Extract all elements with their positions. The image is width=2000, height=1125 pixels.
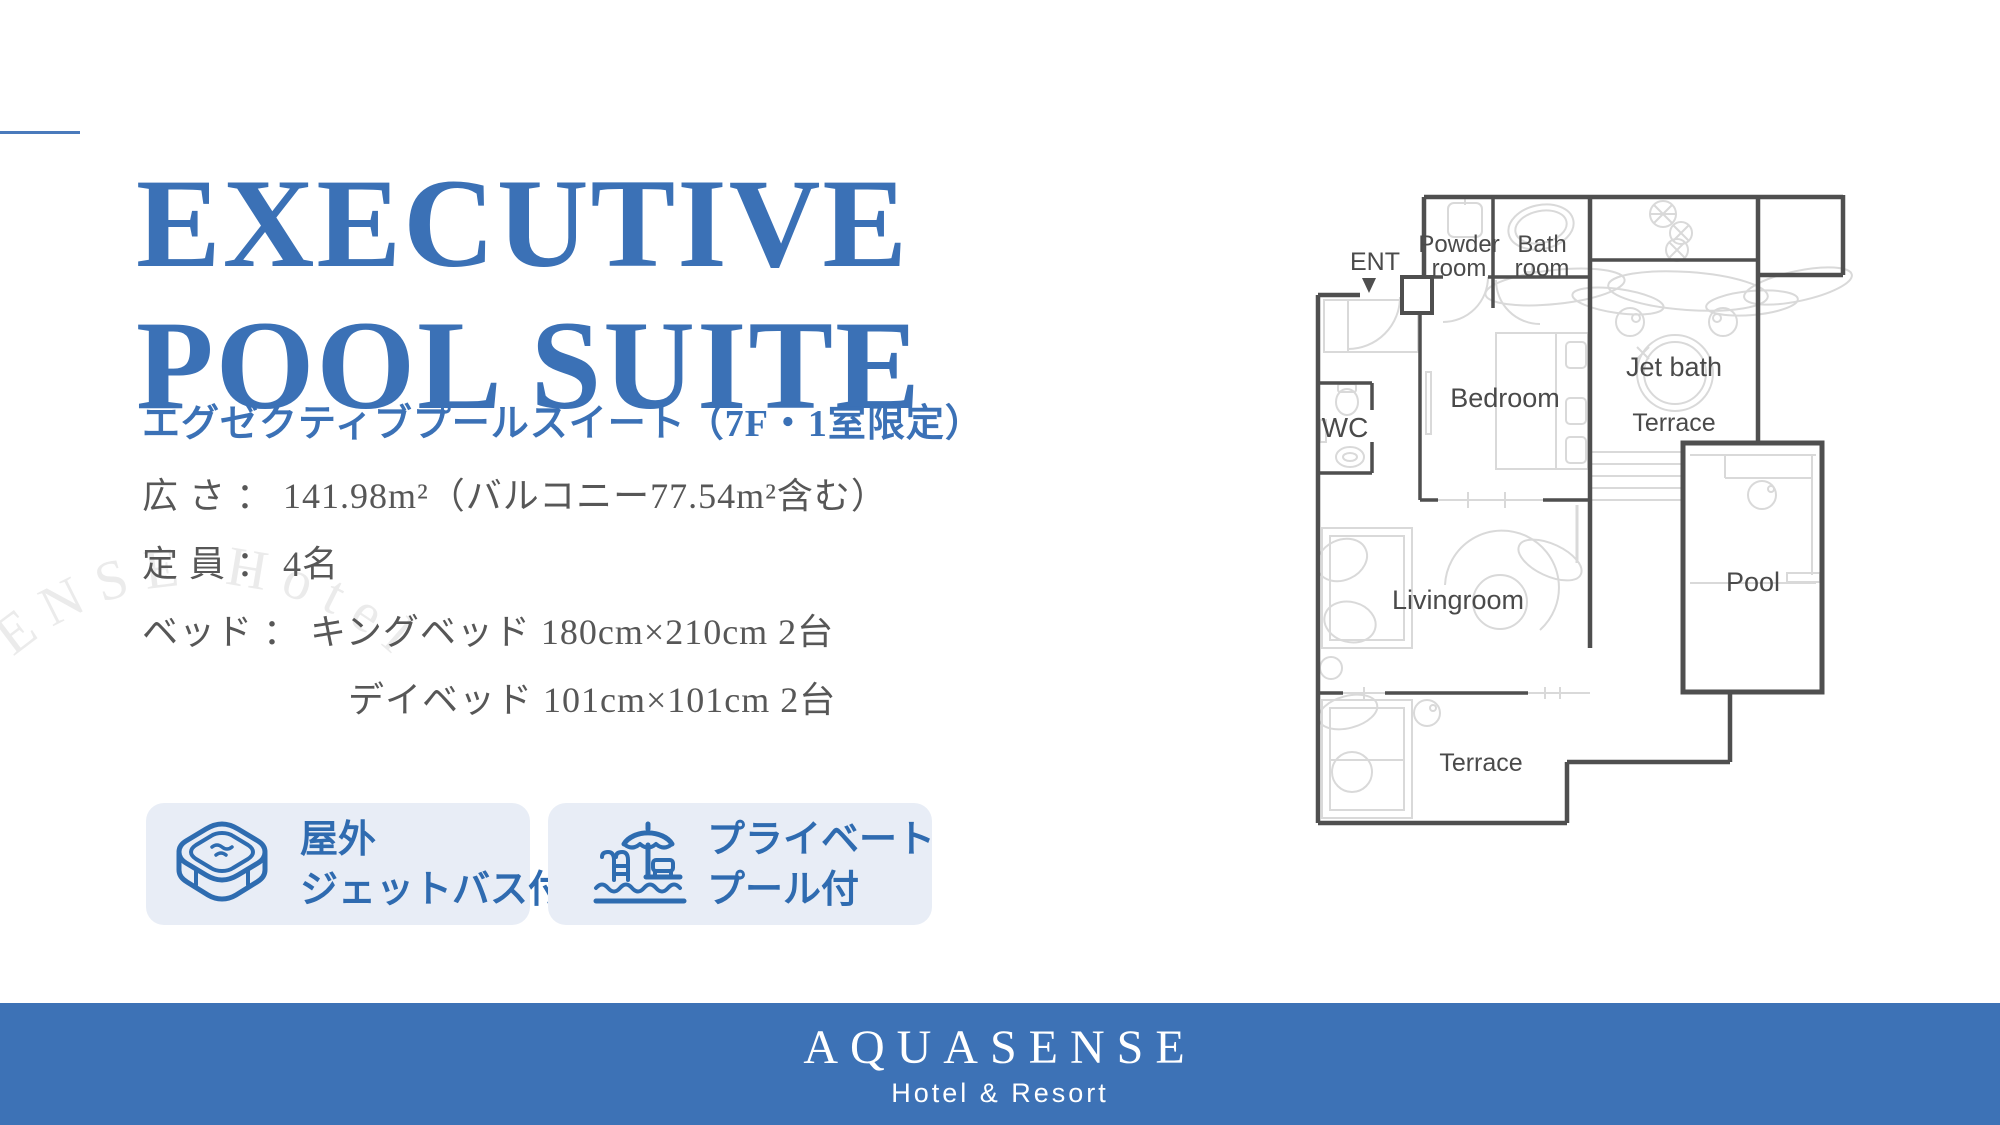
label-wc: WC (1322, 412, 1369, 443)
ent-arrow-icon (1362, 278, 1376, 293)
brand-name: AQUASENSE (0, 1020, 2000, 1075)
room-subtitle-japanese: エグゼクティブプールスイート（7F・1室限定） (142, 392, 984, 447)
page-title-line1: EXECUTIVE (136, 153, 922, 295)
spec-bed-day: デイベッド 101cm×101cm 2台 (142, 666, 888, 734)
accent-dash (0, 131, 80, 134)
label-livingroom: Livingroom (1392, 585, 1524, 615)
label-pool: Pool (1726, 567, 1780, 597)
label-jet-bath: Jet bath (1626, 352, 1722, 382)
spec-bed-king: ベッド ： キングベッド 180cm×210cm 2台 (142, 598, 888, 666)
badge-private-pool-line1: プライベート (707, 815, 935, 865)
badge-private-pool-label: プライベート プール付 (707, 815, 935, 915)
badge-jet-bath-line2: ジェットバス付 (300, 865, 566, 915)
label-powder-room-1: Powder (1418, 231, 1499, 258)
room-flyer-page: sort AQUASENSE Hotel EXECUTIVE POOL SUIT… (0, 0, 2000, 1125)
label-ent: ENT (1350, 248, 1400, 276)
label-bath-room-2: room (1515, 255, 1570, 282)
badge-jet-bath-line1: 屋外 (300, 815, 566, 865)
floor-plan: ENT Powder room Bath room Bedroom Jet ba… (1300, 185, 1860, 845)
label-powder-room-2: room (1432, 255, 1487, 282)
jet-bath-icon (172, 814, 272, 914)
spec-capacity: 定 員 ： 4名 (142, 530, 888, 598)
label-bedroom: Bedroom (1450, 383, 1560, 413)
label-terrace-lower: Terrace (1439, 749, 1522, 777)
brand-tagline: Hotel & Resort (0, 1078, 2000, 1109)
pool-icon (590, 814, 690, 914)
label-terrace-upper: Terrace (1632, 409, 1715, 437)
footer-brand-bar: AQUASENSE Hotel & Resort (0, 1003, 2000, 1125)
feature-badge-private-pool: プライベート プール付 (548, 803, 932, 925)
label-bath-room-1: Bath (1517, 231, 1566, 258)
feature-badge-jet-bath: 屋外 ジェットバス付 (146, 803, 530, 925)
plant-icons (1650, 201, 1692, 261)
badge-jet-bath-label: 屋外 ジェットバス付 (300, 815, 566, 915)
room-specs: 広 さ ： 141.98m²（バルコニー77.54m²含む） 定 員 ： 4名 … (142, 462, 888, 734)
badge-private-pool-line2: プール付 (707, 865, 935, 915)
entry-pillar (1402, 277, 1432, 313)
spec-area: 広 さ ： 141.98m²（バルコニー77.54m²含む） (142, 462, 888, 530)
